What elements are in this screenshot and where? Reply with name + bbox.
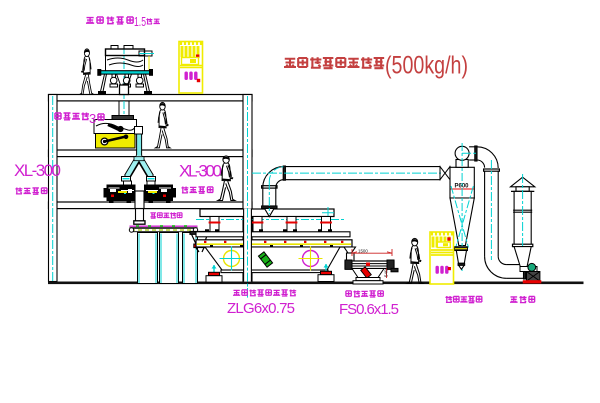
svg-text:(500kg/h): (500kg/h) <box>385 52 468 80</box>
svg-text:1.5: 1.5 <box>134 14 146 29</box>
svg-text:XL-300: XL-300 <box>179 162 222 181</box>
svg-text:XL-300: XL-300 <box>14 161 61 180</box>
svg-text:FS0.6x1.5: FS0.6x1.5 <box>339 301 399 318</box>
svg-text:1500: 1500 <box>358 249 368 254</box>
svg-text:3: 3 <box>89 111 96 126</box>
svg-text:ZLG6x0.75: ZLG6x0.75 <box>227 300 295 317</box>
svg-text:540: 540 <box>384 269 389 277</box>
